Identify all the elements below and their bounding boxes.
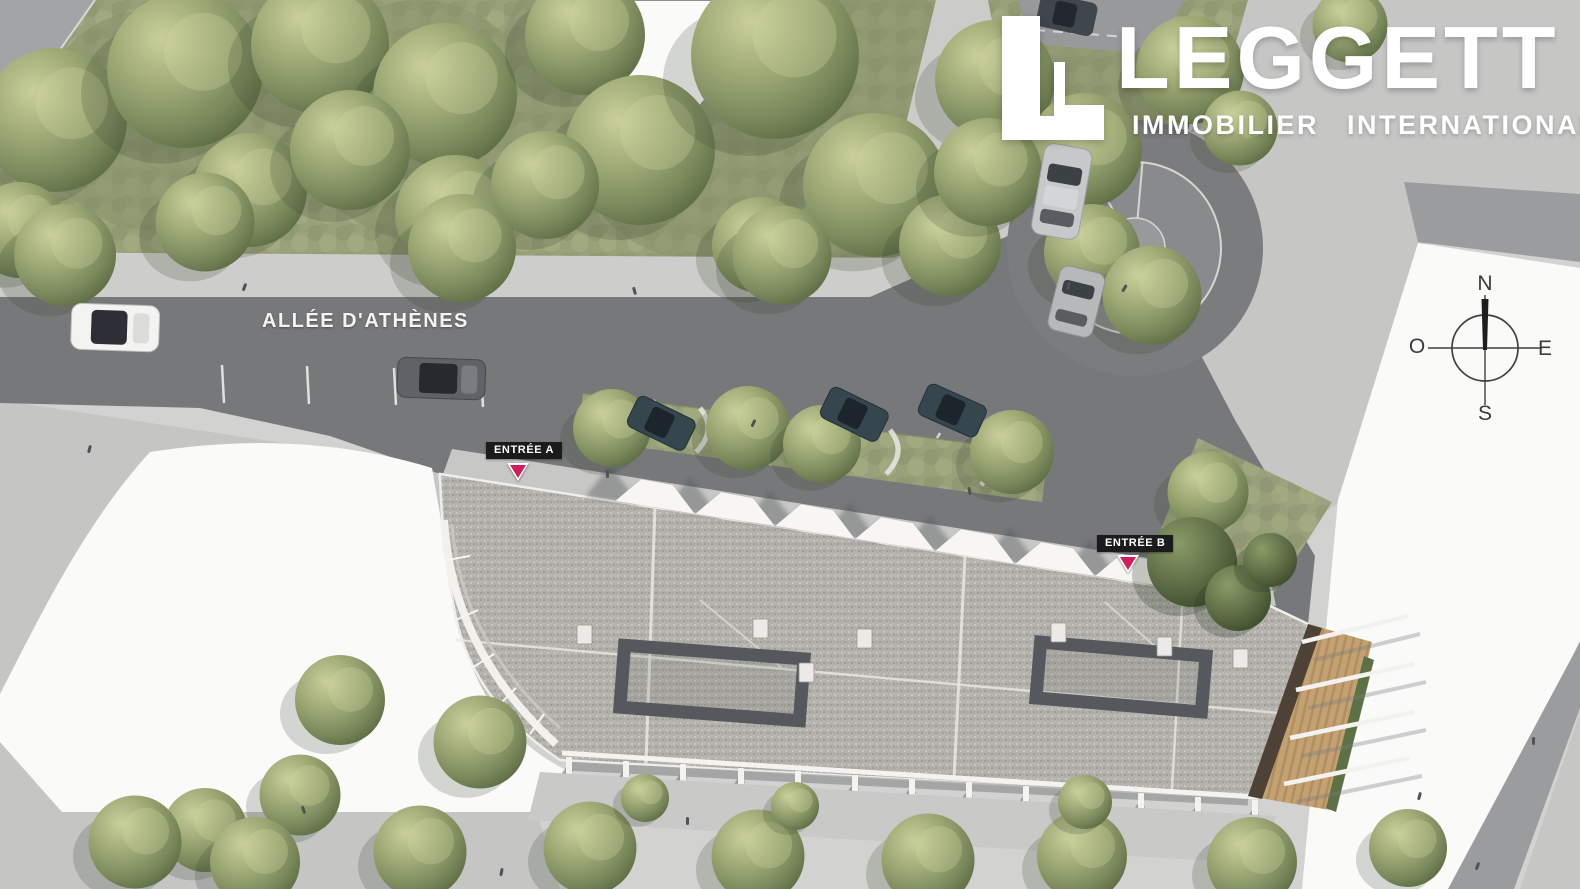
logo-wordmark: LEGGETT: [1116, 16, 1580, 100]
site-plan-image: ALLÉE D'ATHÈNES ENTRÉE A ENTRÉE B N O E …: [0, 0, 1580, 889]
street-name-label: ALLÉE D'ATHÈNES: [262, 310, 469, 333]
entrance-a-marker-icon: [507, 463, 529, 481]
white-car: [70, 303, 160, 352]
compass-label-north: N: [1477, 272, 1492, 296]
leggett-l-mark-icon: [1002, 16, 1106, 140]
leggett-logo: LEGGETT IMMOBILIER INTERNATIONAL: [1002, 16, 1580, 141]
courtyard-frame-a: [620, 645, 804, 720]
entrance-a-badge: ENTRÉE A: [486, 442, 562, 459]
entrance-b-marker-icon: [1117, 555, 1139, 573]
compass-label-west: O: [1409, 335, 1425, 359]
entrance-b-badge: ENTRÉE B: [1097, 535, 1173, 552]
logo-subtitle: IMMOBILIER INTERNATIONAL: [1132, 110, 1580, 141]
compass-label-east: E: [1538, 337, 1552, 361]
compass-label-south: S: [1478, 402, 1492, 426]
gray-car: [397, 357, 486, 400]
courtyard-frame-b: [1036, 642, 1206, 712]
